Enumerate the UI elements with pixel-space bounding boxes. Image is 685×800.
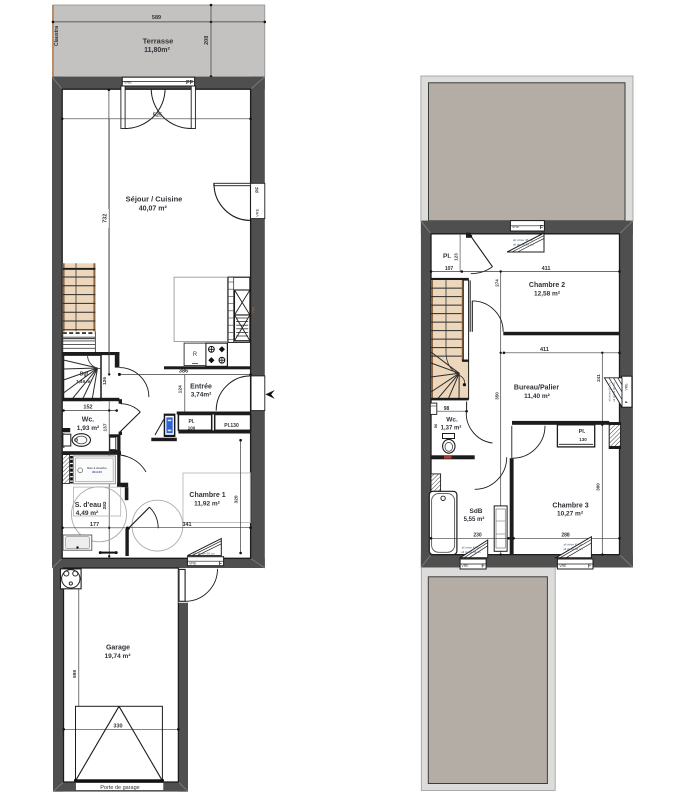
svg-text:11,80m²: 11,80m² bbox=[144, 47, 170, 54]
svg-text:1,49 m²: 1,49 m² bbox=[76, 379, 92, 384]
svg-text:282: 282 bbox=[102, 501, 108, 509]
svg-text:288: 288 bbox=[561, 532, 570, 538]
svg-text:50: 50 bbox=[433, 423, 438, 428]
svg-text:Claustra: Claustra bbox=[54, 26, 60, 46]
svg-text:Chambre 2: Chambre 2 bbox=[529, 282, 565, 289]
svg-text:Garage: Garage bbox=[106, 645, 130, 652]
svg-text:12,58 m²: 12,58 m² bbox=[534, 291, 561, 298]
svg-text:107: 107 bbox=[445, 266, 454, 272]
svg-text:11,92 m²: 11,92 m² bbox=[194, 501, 220, 508]
svg-text:PF: PF bbox=[186, 80, 194, 86]
svg-text:S. d'eau: S. d'eau bbox=[75, 502, 102, 509]
svg-text:Dgt: Dgt bbox=[80, 372, 89, 378]
svg-text:all vitrée 45 cm: all vitrée 45 cm bbox=[462, 545, 481, 549]
svg-text:Pl.: Pl. bbox=[188, 419, 195, 425]
svg-text:Séjour / Cuisine: Séjour / Cuisine bbox=[126, 195, 183, 204]
svg-text:40,07 m²: 40,07 m² bbox=[139, 206, 168, 213]
svg-text:152: 152 bbox=[83, 405, 92, 411]
svg-text:123: 123 bbox=[453, 253, 458, 261]
svg-text:330: 330 bbox=[113, 723, 122, 729]
svg-text:5,55 m²: 5,55 m² bbox=[464, 516, 485, 523]
svg-text:Terrasse: Terrasse bbox=[143, 37, 174, 46]
svg-text:98: 98 bbox=[444, 406, 450, 412]
svg-text:19,74 m²: 19,74 m² bbox=[104, 653, 131, 660]
svg-text:all pleine 95 cm: all pleine 95 cm bbox=[563, 547, 583, 551]
svg-text:all pleine 60 cm: all pleine 60 cm bbox=[612, 382, 616, 402]
svg-text:3,74m²: 3,74m² bbox=[191, 392, 212, 399]
svg-text:411: 411 bbox=[540, 347, 549, 353]
svg-text:Chambre 1: Chambre 1 bbox=[189, 492, 225, 499]
svg-text:Pl.130: Pl.130 bbox=[224, 423, 239, 429]
svg-text:Bureau/Palier: Bureau/Palier bbox=[514, 385, 559, 392]
svg-text:F: F bbox=[482, 564, 485, 570]
svg-text:F: F bbox=[588, 564, 591, 570]
svg-text:341: 341 bbox=[182, 522, 191, 528]
svg-text:VRE: VRE bbox=[124, 80, 132, 84]
svg-text:4,49 m²: 4,49 m² bbox=[76, 510, 99, 517]
svg-text:126: 126 bbox=[102, 377, 108, 385]
svg-text:411: 411 bbox=[542, 266, 551, 272]
svg-text:VRE: VRE bbox=[462, 564, 470, 568]
svg-text:VRE: VRE bbox=[559, 564, 567, 568]
svg-text:11,40 m²: 11,40 m² bbox=[524, 393, 550, 400]
svg-text:360: 360 bbox=[595, 483, 600, 491]
svg-text:732: 732 bbox=[103, 214, 109, 223]
svg-text:1,93 m²: 1,93 m² bbox=[77, 425, 100, 432]
svg-text:all pleine 85 cm: all pleine 85 cm bbox=[513, 243, 534, 247]
svg-text:Pl.: Pl. bbox=[443, 253, 451, 260]
svg-text:Wc.: Wc. bbox=[82, 417, 95, 424]
svg-text:589: 589 bbox=[152, 15, 161, 21]
svg-text:Entrée: Entrée bbox=[190, 383, 212, 390]
svg-text:10,27 m²: 10,27 m² bbox=[557, 511, 584, 518]
svg-text:PF: PF bbox=[255, 187, 260, 193]
svg-text:VRE: VRE bbox=[512, 225, 520, 229]
svg-text:all vitrée 60 cm: all vitrée 60 cm bbox=[608, 382, 612, 401]
svg-text:124: 124 bbox=[178, 385, 184, 393]
svg-text:Porte de garage: Porte de garage bbox=[100, 785, 139, 791]
svg-text:VRE: VRE bbox=[252, 306, 256, 314]
svg-text:all vitrée 45 cm: all vitrée 45 cm bbox=[564, 543, 583, 547]
svg-text:90x120: 90x120 bbox=[92, 470, 102, 474]
svg-text:100: 100 bbox=[188, 425, 196, 430]
svg-text:274: 274 bbox=[495, 279, 500, 287]
svg-text:VRE: VRE bbox=[625, 383, 629, 391]
svg-text:all vitrée 45 cm: all vitrée 45 cm bbox=[513, 238, 534, 242]
svg-text:137: 137 bbox=[102, 423, 108, 431]
svg-text:177: 177 bbox=[90, 522, 99, 528]
svg-text:VRE: VRE bbox=[255, 208, 260, 217]
svg-text:230: 230 bbox=[473, 532, 482, 538]
svg-text:320: 320 bbox=[234, 495, 240, 503]
svg-text:130: 130 bbox=[579, 437, 587, 442]
svg-text:VRE: VRE bbox=[189, 561, 197, 565]
svg-text:350: 350 bbox=[495, 392, 500, 400]
svg-text:SdB: SdB bbox=[470, 508, 483, 515]
svg-text:all pleine 55 cm: all pleine 55 cm bbox=[461, 550, 481, 554]
svg-text:1,37 m²: 1,37 m² bbox=[441, 424, 462, 431]
svg-text:386: 386 bbox=[179, 369, 188, 375]
svg-text:208: 208 bbox=[204, 36, 210, 45]
svg-text:525: 525 bbox=[153, 112, 162, 118]
svg-text:Chambre 3: Chambre 3 bbox=[552, 502, 588, 509]
svg-text:241: 241 bbox=[596, 374, 601, 382]
svg-text:all. pleine 90 cm: all. pleine 90 cm bbox=[193, 551, 215, 555]
svg-text:R: R bbox=[193, 352, 198, 358]
svg-text:598: 598 bbox=[72, 670, 78, 678]
svg-text:Wc.: Wc. bbox=[446, 417, 458, 424]
svg-text:Pl.: Pl. bbox=[579, 429, 586, 435]
